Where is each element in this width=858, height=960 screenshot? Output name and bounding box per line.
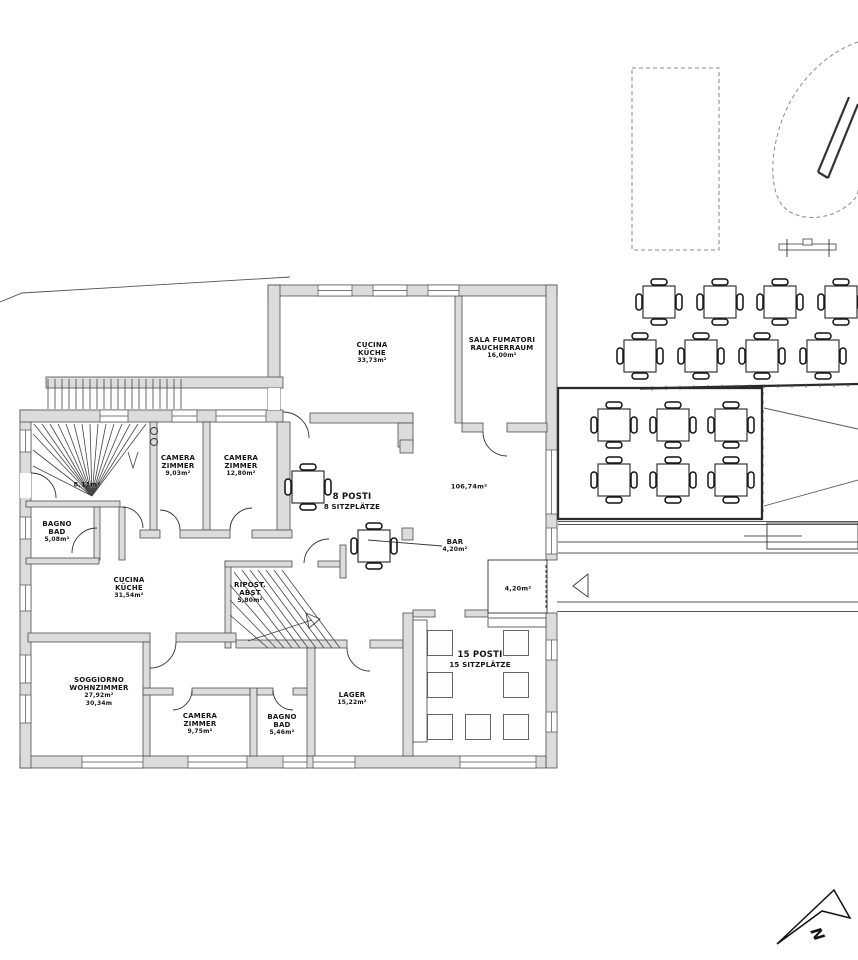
- table-4-chairs: [800, 333, 846, 379]
- room-label-camera3: CAMERA ZIMMER 9,75m²: [183, 712, 217, 736]
- room-label-cucina-ovest: CUCINA KÜCHE 31,54m²: [113, 576, 144, 600]
- table-4-chairs: [591, 402, 637, 448]
- table-4-chairs: [351, 523, 397, 569]
- square-table: [466, 715, 491, 740]
- label-dining-area: 106,74m²: [451, 483, 487, 490]
- ramp-lines: [764, 408, 858, 506]
- bench-element: [779, 239, 836, 257]
- table-4-chairs: [636, 279, 682, 325]
- room-label-bagno2: BAGNO BAD 5,46m²: [267, 713, 296, 737]
- path-lower-lines: [546, 602, 858, 612]
- room-label-camera2: CAMERA ZIMMER 12,80m²: [224, 454, 258, 478]
- terrain-contour-line: [0, 277, 290, 302]
- room-label-cucina-nord: CUCINA KÜCHE 33,73m²: [356, 341, 387, 365]
- dashed-outline-structure: [632, 68, 719, 250]
- table-4-chairs: [650, 457, 696, 503]
- square-table: [428, 715, 453, 740]
- table-4-chairs: [617, 333, 663, 379]
- table-4-chairs: [757, 279, 803, 325]
- bench-left: [413, 620, 427, 742]
- column: [400, 440, 413, 453]
- floor-plan: N 8,11m² CAMERA ZIMMER 9,03m² CAMERA ZIM…: [0, 0, 858, 960]
- table-4-chairs: [678, 333, 724, 379]
- square-table: [504, 715, 529, 740]
- table-4-chairs: [708, 402, 754, 448]
- table-4-chairs: [591, 457, 637, 503]
- label-15-posti: 15 POSTI 15 SITZPLÄTZE: [449, 651, 510, 669]
- north-label: N: [806, 924, 828, 944]
- room-label-sala-fumatori: SALA FUMATORI RAUCHERRAUM 16,00m²: [469, 336, 535, 360]
- label-8-posti: 8 POSTI 8 SITZPLÄTZE: [324, 493, 380, 511]
- retaining-wall-lines: [818, 97, 858, 178]
- door-opening: [268, 388, 280, 410]
- square-table: [428, 673, 453, 698]
- entrance-arrow: [573, 574, 588, 597]
- room-label-camera1: CAMERA ZIMMER 9,03m²: [161, 454, 195, 478]
- table-4-chairs: [739, 333, 785, 379]
- room-label-ripostiglio: RIPOST. ABST 5,80m²: [234, 581, 266, 605]
- room-label-lager: LAGER 15,22m²: [337, 691, 366, 707]
- table-4-chairs: [818, 279, 858, 325]
- label-bar: BAR 4,20m²: [443, 538, 468, 554]
- room-label-hall: 8,11m²: [74, 481, 101, 488]
- dashed-terrain-blob: [773, 42, 858, 217]
- square-table: [504, 673, 529, 698]
- room-label-soggiorno: SOGGIORNO WOHNZIMMER 27,92m² 30,34m: [69, 676, 128, 708]
- door-opening: [20, 473, 31, 498]
- bench-top: [488, 618, 546, 627]
- column: [402, 528, 413, 540]
- path-upper-lines: [558, 542, 858, 553]
- table-4-chairs: [650, 402, 696, 448]
- table-4-chairs: [708, 457, 754, 503]
- label-vestibolo: 4,20m²: [505, 585, 532, 592]
- floor-plan-drawing: N: [0, 0, 858, 960]
- room-label-bagno1: BAGNO BAD 5,08m²: [42, 520, 71, 544]
- table-4-chairs: [697, 279, 743, 325]
- north-arrow: N: [777, 890, 850, 944]
